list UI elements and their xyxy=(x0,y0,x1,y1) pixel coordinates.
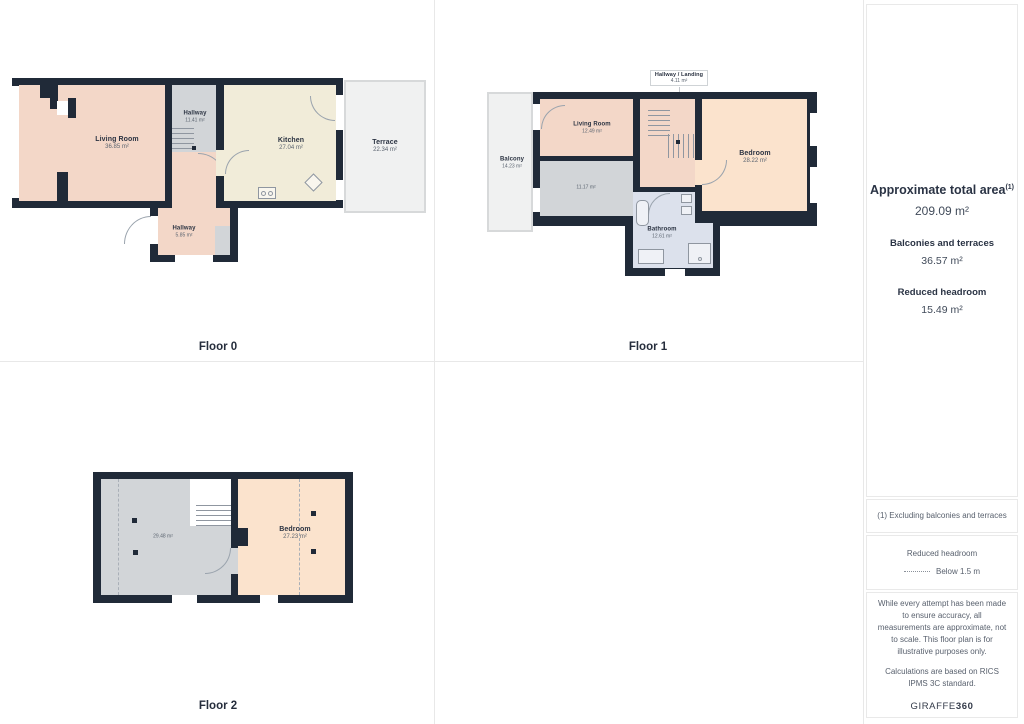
floor-1-label: Floor 1 xyxy=(629,341,667,353)
shower-icon xyxy=(688,243,711,264)
stairs-icon xyxy=(668,134,696,158)
door-opening xyxy=(695,160,702,185)
balconies-label: Balconies and terraces xyxy=(867,238,1017,249)
bathtub-icon xyxy=(636,200,649,226)
unnamed-room-area xyxy=(540,161,633,216)
reduced-headroom-value: 15.49 m² xyxy=(867,304,1017,316)
giraffe360-logo: GIRAFFE360 xyxy=(910,701,973,712)
roof-post xyxy=(133,550,138,555)
room-area: 4.11 m² xyxy=(653,78,705,84)
window xyxy=(533,188,540,212)
disclaimer-text-1: While every attempt has been made to ens… xyxy=(867,598,1017,658)
footnote-panel: (1) Excluding balconies and terraces xyxy=(866,499,1018,533)
door-opening xyxy=(231,548,238,574)
floor-1-plan: Hallway / Landing 4.11 m² xyxy=(0,0,864,361)
total-area-label: Approximate total area(1) xyxy=(867,183,1017,197)
legend-panel: Reduced headroom Below 1.5 m xyxy=(866,535,1018,590)
bedroom-area xyxy=(238,479,345,595)
window xyxy=(172,595,197,603)
hallway-landing-callout: Hallway / Landing 4.11 m² xyxy=(650,70,708,86)
legend-title: Reduced headroom xyxy=(907,548,977,560)
floor-2-label: Floor 2 xyxy=(199,700,237,712)
balconies-value: 36.57 m² xyxy=(867,255,1017,267)
dotted-line-icon xyxy=(904,571,930,572)
bedroom-area xyxy=(702,99,807,211)
roof-post xyxy=(311,511,316,516)
summary-panel: Approximate total area(1) 209.09 m² Balc… xyxy=(866,4,1018,497)
chimney-block xyxy=(238,528,248,546)
footnote-marker: (1) xyxy=(1005,184,1014,191)
reduced-headroom-label: Reduced headroom xyxy=(867,287,1017,298)
roof-post xyxy=(311,549,316,554)
disclaimer-text-2: Calculations are based on RICS IPMS 3C s… xyxy=(867,666,1017,690)
floorplan-sheet: Living Room 36.85 m² Hallway 11.41 m² Ki… xyxy=(0,0,1024,724)
vanity-icon xyxy=(638,249,664,264)
legend-value: Below 1.5 m xyxy=(936,566,980,578)
window xyxy=(260,595,278,603)
sink-small-icon xyxy=(681,206,692,215)
stairs-icon xyxy=(648,110,670,140)
floor-2-plan: 29.48 m² Bedroom 27.23 m² Floor 2 xyxy=(0,361,434,724)
total-area-value: 209.09 m² xyxy=(867,204,1017,218)
stairs-icon xyxy=(196,505,231,526)
toilet-icon xyxy=(681,194,692,203)
reduced-headroom-line xyxy=(299,479,300,595)
door-opening xyxy=(533,104,540,130)
window xyxy=(810,113,817,146)
balcony-area xyxy=(487,92,533,232)
window xyxy=(665,269,685,276)
disclaimer-panel: While every attempt has been made to ens… xyxy=(866,592,1018,718)
footnote-text: (1) Excluding balconies and terraces xyxy=(877,510,1006,522)
roof-post xyxy=(132,518,137,523)
stair-post xyxy=(676,140,680,144)
reduced-headroom-line xyxy=(118,479,119,595)
window xyxy=(810,167,817,203)
